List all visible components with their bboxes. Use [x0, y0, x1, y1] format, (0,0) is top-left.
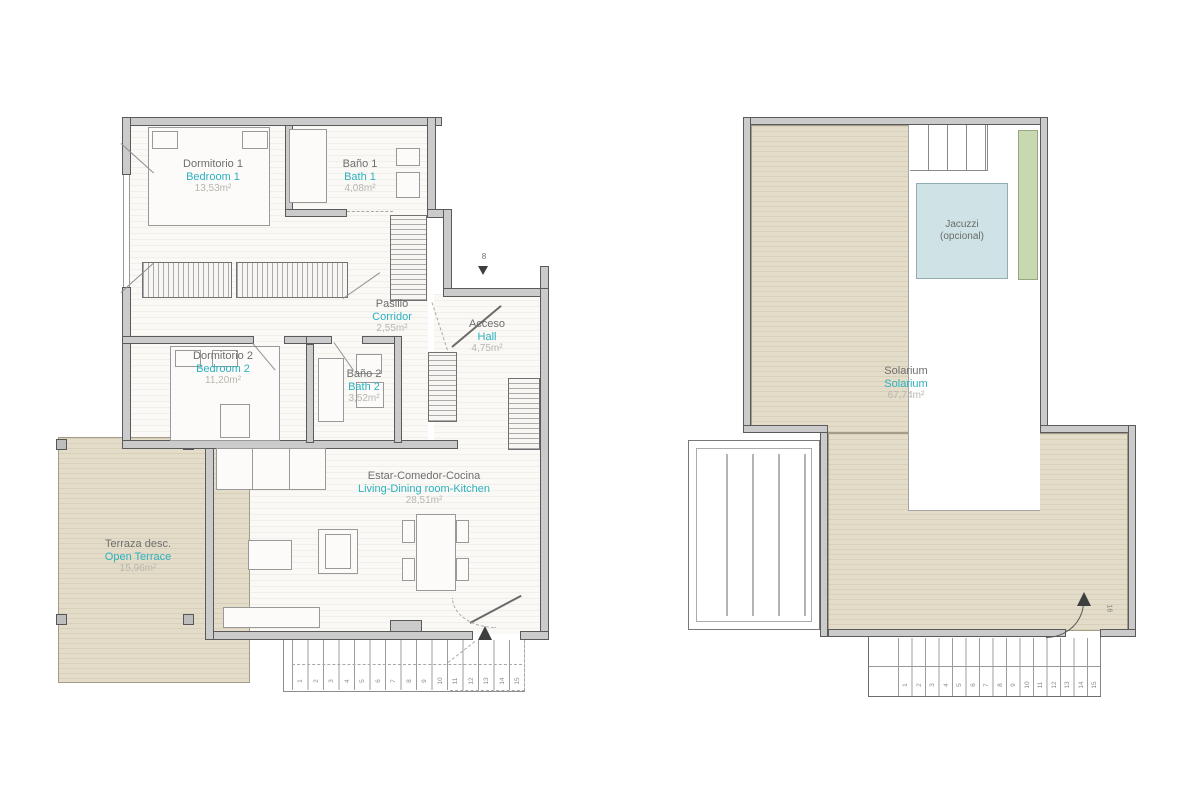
- dining-chair: [402, 520, 415, 543]
- solarium-wall-right-lower: [1128, 425, 1136, 637]
- solarium-name-en: Solarium: [884, 378, 927, 391]
- stair-step-number: 12: [1046, 678, 1060, 692]
- bed-2-table: [220, 404, 250, 438]
- wall-bath1-right: [427, 117, 436, 218]
- jacuzzi-label-line2: (opcional): [940, 231, 984, 243]
- stair-step-number: 10: [432, 673, 446, 689]
- kitchen-counter: [223, 607, 320, 628]
- coffee-table: [248, 540, 292, 570]
- stair-step-number: 8: [992, 678, 1006, 692]
- stair-step-number: 9: [417, 673, 431, 689]
- bedroom1-name-es: Dormitorio 1: [183, 158, 243, 171]
- wall-left-lower: [122, 287, 131, 448]
- jacuzzi-label-line1: Jacuzzi: [940, 219, 984, 231]
- hall-name-en: Hall: [469, 331, 505, 344]
- stair-step-number: 6: [965, 678, 979, 692]
- stair-step-number: 15: [510, 673, 524, 689]
- shower-bath1: [289, 129, 327, 203]
- solarium-steps: [910, 125, 988, 171]
- room-label-bedroom2: Dormitorio 2 Bedroom 2 11,20m²: [193, 350, 253, 388]
- bedroom1-name-en: Bedroom 1: [183, 171, 243, 184]
- wardrobe-hall: [508, 378, 540, 450]
- wardrobe-corridor-left: [142, 262, 232, 298]
- stair-step-number: 14: [1073, 678, 1087, 692]
- bath2-name-es: Baño 2: [347, 368, 382, 381]
- terrace-post: [56, 439, 67, 450]
- wardrobe-bath2-side: [428, 352, 457, 422]
- room-label-bath2: Baño 2 Bath 2 3,52m²: [347, 368, 382, 406]
- wall-top: [122, 117, 442, 126]
- bath1-name-es: Baño 1: [343, 158, 378, 171]
- terrace-post: [183, 614, 194, 625]
- stair-step-number: 11: [448, 673, 462, 689]
- toilet-bath1: [396, 148, 420, 166]
- terrace-area: 15,96m²: [105, 563, 171, 576]
- jacuzzi: Jacuzzi (opcional): [916, 183, 1008, 279]
- bedroom2-name-en: Bedroom 2: [193, 363, 253, 376]
- stair-step-number: 10: [1019, 678, 1033, 692]
- stair-step-number: 2: [911, 678, 925, 692]
- solarium-area: 67,74m²: [884, 390, 927, 403]
- stair-step-number: 7: [979, 678, 993, 692]
- solarium-wall-right-upper: [1040, 117, 1048, 433]
- hall-area: 4,75m²: [469, 343, 505, 356]
- living-name-es: Estar-Comedor-Cocina: [358, 470, 490, 483]
- stair-step-number: 14: [494, 673, 508, 689]
- stair-step-numbers-right: 123456789101112131415: [898, 672, 1101, 692]
- wall-dorm2-bath2: [306, 344, 314, 443]
- bedroom2-area: 11,20m²: [193, 375, 253, 388]
- bedroom1-area: 13,53m²: [183, 183, 243, 196]
- living-name-en: Living-Dining room-Kitchen: [358, 483, 490, 496]
- bath2-area: 3,52m²: [347, 393, 382, 406]
- solarium-wall-left-lower: [820, 425, 828, 637]
- entry-marker-label: 8: [477, 252, 491, 261]
- room-label-bath1: Baño 1 Bath 1 4,08m²: [343, 158, 378, 196]
- solarium-wall-bottom-a: [828, 629, 1066, 637]
- planter-strip: [1018, 130, 1038, 280]
- stair-landing-number: 16: [1106, 605, 1113, 619]
- terrace-post: [56, 614, 67, 625]
- wall-bath2-top-a: [306, 336, 332, 344]
- stair-step-numbers-left: 123456789101112131415: [292, 668, 525, 688]
- wall-living-left: [205, 444, 214, 640]
- stairs-up-arrow-icon: [478, 626, 492, 640]
- wall-right-column: [443, 209, 452, 297]
- solarium-wall-left-upper: [743, 117, 751, 433]
- stair-step-number: 1: [898, 678, 912, 692]
- solarium-wall-top: [743, 117, 1048, 125]
- corridor-area: 2,55m²: [372, 323, 412, 336]
- stair-step-number: 13: [1060, 678, 1074, 692]
- room-label-terrace: Terraza desc. Open Terrace 15,96m²: [105, 538, 171, 576]
- sofa: [216, 448, 326, 490]
- stair-step-number: 5: [952, 678, 966, 692]
- room-label-hall: Acceso Hall 4,75m²: [469, 318, 505, 356]
- bed-1-pillow: [242, 131, 268, 149]
- living-area: 28,51m²: [358, 495, 490, 508]
- terrace-name-es: Terraza desc.: [105, 538, 171, 551]
- wall-bath2-right: [394, 336, 402, 443]
- stair-step-number: 3: [925, 678, 939, 692]
- stair-step-number: 2: [308, 673, 322, 689]
- solarium-wall-step-top: [1040, 425, 1136, 433]
- solarium-wall-bottom-b: [1100, 629, 1136, 637]
- sink-bath1: [396, 172, 420, 198]
- wall-bottom-a: [205, 631, 473, 640]
- stair-step-number: 6: [370, 673, 384, 689]
- wall-hall-top: [443, 288, 549, 297]
- dining-table: [416, 514, 456, 591]
- stair-step-number: 7: [386, 673, 400, 689]
- entry-arrow-icon: [478, 266, 488, 275]
- stairs-arrival-path: [1046, 602, 1084, 638]
- wall-corridor-a: [122, 336, 254, 344]
- dining-chair: [456, 520, 469, 543]
- stair-step-number: 3: [324, 673, 338, 689]
- sofa-cushion-line: [252, 449, 253, 489]
- solarium-name-es: Solarium: [884, 365, 927, 378]
- stairs-arrival-arrow-icon: [1077, 592, 1091, 606]
- wall-right-main: [540, 288, 549, 640]
- dining-chair: [402, 558, 415, 581]
- room-label-living: Estar-Comedor-Cocina Living-Dining room-…: [358, 470, 490, 508]
- shower-bath2: [318, 358, 344, 422]
- window-left: [123, 175, 130, 287]
- dining-chair: [456, 558, 469, 581]
- wall-bath1-bottom: [285, 209, 347, 217]
- jacuzzi-label: Jacuzzi (opcional): [940, 219, 984, 243]
- stair-step-number: 4: [339, 673, 353, 689]
- bedroom2-name-es: Dormitorio 2: [193, 350, 253, 363]
- stair-step-number: 15: [1087, 678, 1101, 692]
- corridor-name-en: Corridor: [372, 311, 412, 324]
- stair-step-number: 11: [1033, 678, 1047, 692]
- room-label-bedroom1: Dormitorio 1 Bedroom 1 13,53m²: [183, 158, 243, 196]
- hall-name-es: Acceso: [469, 318, 505, 331]
- room-label-solarium: Solarium Solarium 67,74m²: [884, 365, 927, 403]
- armchair-seat: [325, 534, 351, 569]
- corridor-name-es: Pasillo: [372, 298, 412, 311]
- stair-step-number: 8: [401, 673, 415, 689]
- solarium-wall-upperleft-bottom: [743, 425, 828, 433]
- wardrobe-column: [390, 215, 427, 301]
- terrace-name-en: Open Terrace: [105, 551, 171, 564]
- sofa-cushion-line: [289, 449, 290, 489]
- room-label-corridor: Pasillo Corridor 2,55m²: [372, 298, 412, 336]
- stair-step-number: 13: [479, 673, 493, 689]
- bed-1-pillow: [152, 131, 178, 149]
- stair-step-number: 9: [1006, 678, 1020, 692]
- bath2-name-en: Bath 2: [347, 381, 382, 394]
- bath1-name-en: Bath 1: [343, 171, 378, 184]
- stair-step-number: 1: [293, 673, 307, 689]
- stair-step-number: 5: [355, 673, 369, 689]
- stair-step-number: 12: [463, 673, 477, 689]
- pergola-slats: [702, 454, 806, 616]
- wardrobe-corridor-right: [236, 262, 348, 298]
- bath1-area: 4,08m²: [343, 183, 378, 196]
- bath1-door-swing: [347, 211, 393, 212]
- stair-step-number: 4: [938, 678, 952, 692]
- floor-plan-canvas: 8 123456789101112131415 Dormitorio 1 Bed…: [0, 0, 1200, 800]
- wall-pillar: [390, 620, 422, 632]
- wall-bottom-b: [520, 631, 549, 640]
- staircase-right-midline: [869, 666, 1100, 667]
